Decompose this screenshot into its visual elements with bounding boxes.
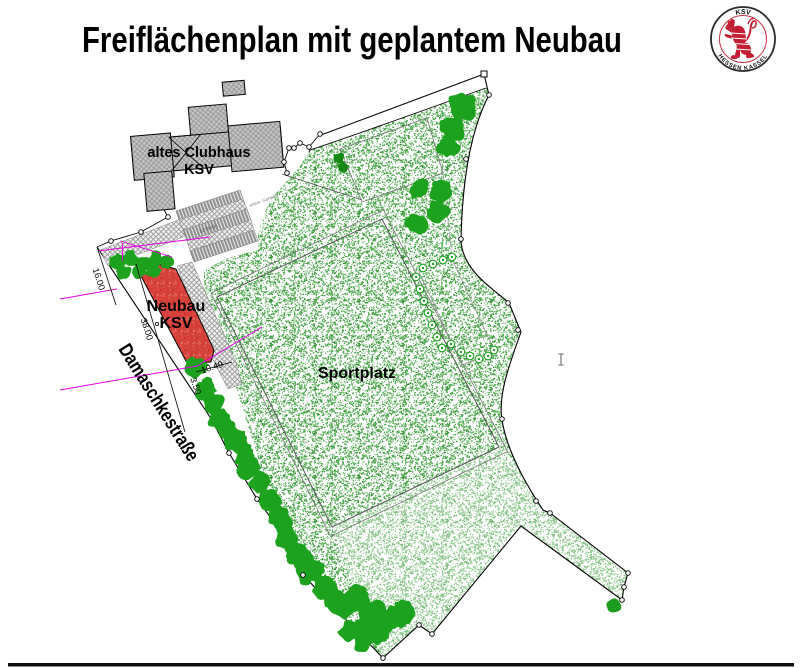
svg-text:KSV: KSV — [735, 9, 751, 17]
svg-text:Sportplatz: Sportplatz — [318, 365, 396, 382]
svg-text:Freiflächenplan mit geplantem: Freiflächenplan mit geplantem Neubau — [82, 19, 622, 60]
svg-text:altes Clubhaus: altes Clubhaus — [147, 145, 250, 161]
svg-text:KSV: KSV — [160, 315, 193, 332]
svg-text:KSV: KSV — [184, 162, 214, 178]
svg-text:Neubau: Neubau — [147, 298, 206, 315]
